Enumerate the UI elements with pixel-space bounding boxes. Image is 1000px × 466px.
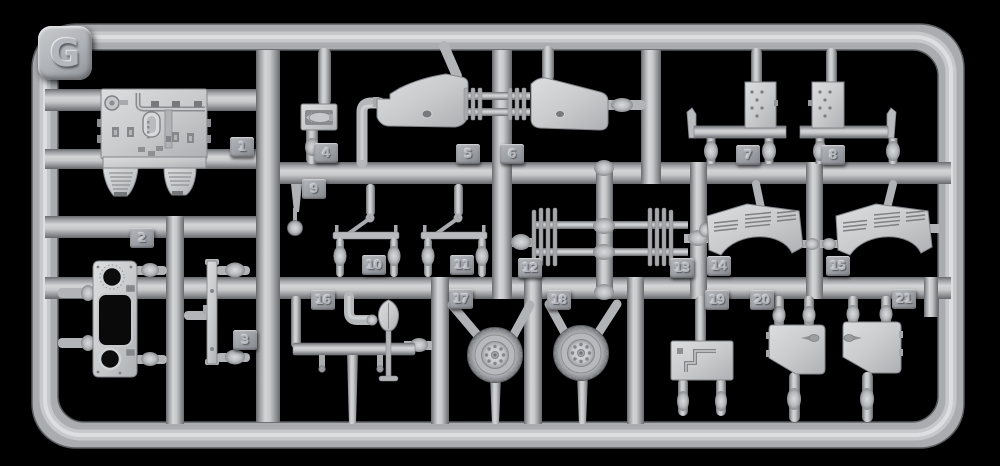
part-18-wheel: [549, 304, 617, 424]
part-tag-18: 18: [547, 290, 571, 310]
part-tag-15: 15: [826, 256, 850, 276]
part-tag-20: 20: [750, 290, 774, 310]
part-tag-17: 17: [449, 289, 473, 309]
sprue-photo: G 1 2 3 4 5 6 7 8 9 10 11 12 13 14 15 16…: [0, 0, 1000, 466]
part-tag-5: 5: [456, 144, 480, 164]
part-tag-8: 8: [821, 145, 845, 165]
part-tag-9: 9: [302, 179, 326, 199]
part-5-fender-left: [362, 46, 468, 162]
part-17-wheel: [452, 305, 530, 424]
part-tag-13: 13: [670, 258, 694, 278]
part-14-louvered-fender: [699, 184, 819, 255]
part-tag-7: 7: [736, 145, 760, 165]
part-16-tool-rack-shovel: [291, 296, 432, 424]
part-tag-14: 14: [707, 256, 731, 276]
part-tag-6: 6: [500, 144, 524, 164]
part-9-gear-lever: [288, 184, 303, 236]
part-tag-2: 2: [130, 228, 154, 248]
sprue-letter-label: G: [38, 26, 92, 80]
part-tag-11: 11: [450, 255, 474, 275]
part-tag-21: 21: [892, 289, 916, 309]
part-tag-12: 12: [518, 258, 542, 278]
part-tag-3: 3: [233, 330, 257, 350]
part-21-door: [843, 296, 903, 422]
part-8-seat-bracket-right: [800, 48, 900, 164]
part-tag-10: 10: [362, 255, 386, 275]
part-1-firewall-panel: [97, 89, 211, 196]
part-20-door: [766, 296, 825, 422]
part-tag-4: 4: [314, 143, 338, 163]
part-6-fender-right: [531, 46, 646, 130]
part-tag-19: 19: [705, 290, 729, 310]
part-tag-16: 16: [311, 290, 335, 310]
part-19-crank-plate: [671, 296, 733, 416]
part-15-louvered-fender: [820, 184, 939, 255]
part-tag-1: 1: [230, 137, 254, 157]
